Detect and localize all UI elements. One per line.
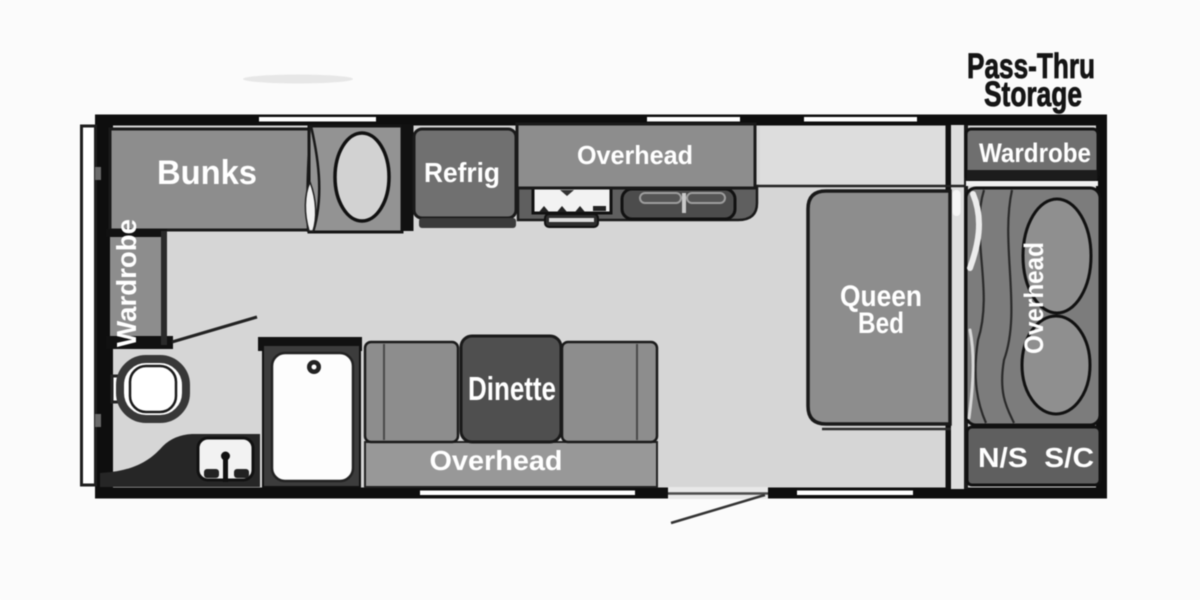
svg-text:N/S S/C: N/S S/C xyxy=(978,442,1094,473)
svg-text:Bed: Bed xyxy=(858,307,904,340)
svg-text:Overhead: Overhead xyxy=(577,140,693,170)
svg-text:Bunks: Bunks xyxy=(157,154,257,192)
svg-text:Storage: Storage xyxy=(984,75,1082,114)
svg-text:Wardrobe: Wardrobe xyxy=(979,138,1091,168)
svg-text:Wardrobe: Wardrobe xyxy=(111,219,142,347)
svg-text:Refrig: Refrig xyxy=(424,157,500,188)
svg-text:Dinette: Dinette xyxy=(468,370,556,407)
svg-text:Overhead: Overhead xyxy=(430,445,563,476)
svg-text:Overhead: Overhead xyxy=(1019,242,1049,354)
